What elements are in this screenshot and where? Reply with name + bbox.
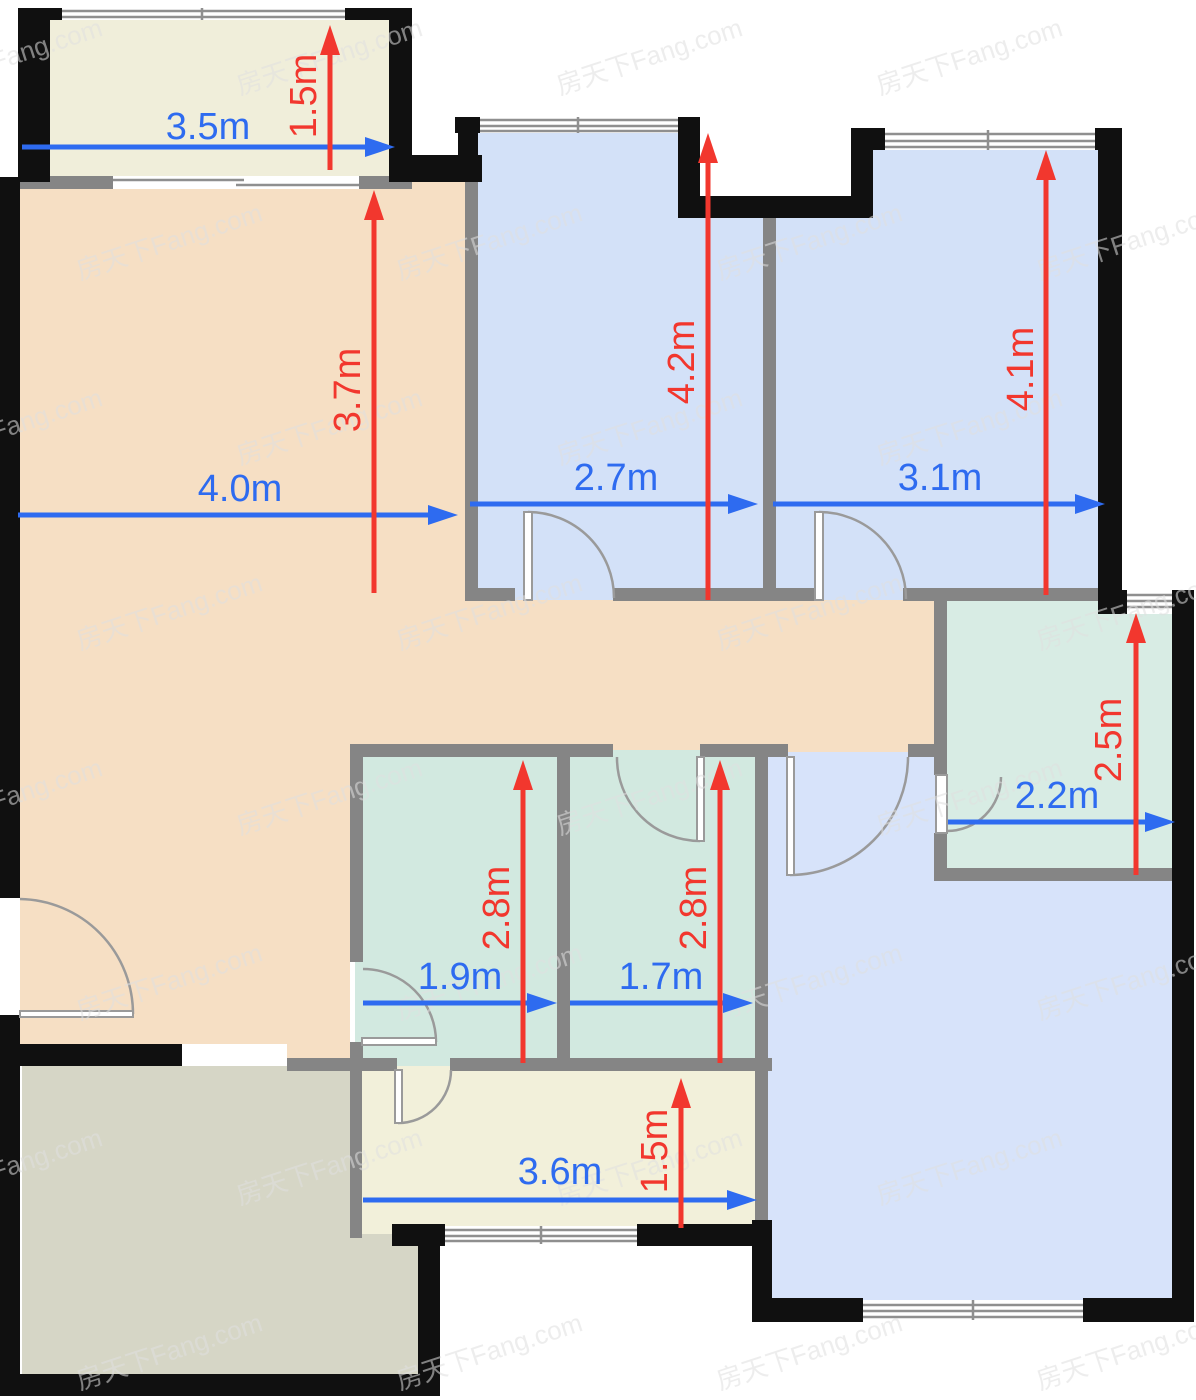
interior-wall-segment xyxy=(557,750,570,1066)
exterior-wall-segment xyxy=(0,1044,182,1066)
balcony-sliding-door xyxy=(113,176,359,189)
interior-wall-segment xyxy=(767,744,788,757)
watermark-text: 房天下Fang.com xyxy=(873,12,1066,100)
room-bathroom-left xyxy=(355,750,563,1066)
dimension-label: 4.2m xyxy=(661,320,703,404)
exterior-wall-segment xyxy=(0,1374,440,1396)
bathroom-left-door-leaf xyxy=(362,1038,436,1045)
dimension-label: 2.8m xyxy=(476,866,518,950)
dimension-label: 2.7m xyxy=(574,457,658,499)
dimension-label: 1.7m xyxy=(619,956,703,998)
interior-wall-segment xyxy=(350,744,613,757)
dimension-label: 1.5m xyxy=(283,54,325,138)
floor-plan-canvas: 房天下Fang.com房天下Fang.com房天下Fang.com房天下Fang… xyxy=(0,0,1196,1400)
bedroom-bottom-right-door-leaf xyxy=(787,757,794,875)
exterior-wall-segment xyxy=(851,128,885,150)
exterior-wall-segment xyxy=(392,1224,445,1246)
interior-wall-segment xyxy=(613,588,817,601)
dimension-label: 2.5m xyxy=(1088,698,1130,782)
interior-wall-segment xyxy=(287,1058,397,1071)
dimension-label: 2.8m xyxy=(673,866,715,950)
floor-plan: 房天下Fang.com房天下Fang.com房天下Fang.com房天下Fang… xyxy=(0,0,1196,1400)
interior-wall-segment xyxy=(908,744,940,757)
dimension-label: 4.1m xyxy=(1000,327,1042,411)
dimension-label: 3.6m xyxy=(518,1151,602,1193)
exterior-wall-segment xyxy=(637,1224,772,1246)
interior-wall-segment xyxy=(903,588,1098,601)
interior-wall-segment xyxy=(934,868,1180,881)
exterior-wall-segment xyxy=(458,117,478,182)
living-terrace-opening xyxy=(182,1044,287,1066)
watermark-text: 房天下Fang.com xyxy=(1193,382,1196,470)
dimension-label: 2.2m xyxy=(1015,775,1099,817)
dimension-label: 4.0m xyxy=(198,468,282,510)
bedroom-top-middle-window xyxy=(480,117,678,133)
exterior-wall-segment xyxy=(1098,128,1122,604)
bedroom-top-right-door-leaf xyxy=(815,512,823,600)
interior-wall-segment xyxy=(450,1058,772,1071)
kitchen-window xyxy=(445,1226,637,1244)
balcony-window xyxy=(62,8,345,20)
exterior-wall-segment xyxy=(1083,1298,1194,1322)
dimension-label: 3.7m xyxy=(327,348,369,432)
watermark-text: 房天下Fang.com xyxy=(1193,12,1196,100)
balcony-sliding-door-frame xyxy=(113,176,359,189)
dimension-label: 1.5m xyxy=(634,1109,676,1193)
dimension-label: 3.5m xyxy=(166,106,250,148)
exterior-wall-segment xyxy=(0,1015,20,1396)
kitchen-door-leaf xyxy=(395,1070,402,1123)
dimension-label: 1.9m xyxy=(418,956,502,998)
bedroom-top-right-window xyxy=(885,130,1095,150)
dimension-label: 3.1m xyxy=(898,457,982,499)
